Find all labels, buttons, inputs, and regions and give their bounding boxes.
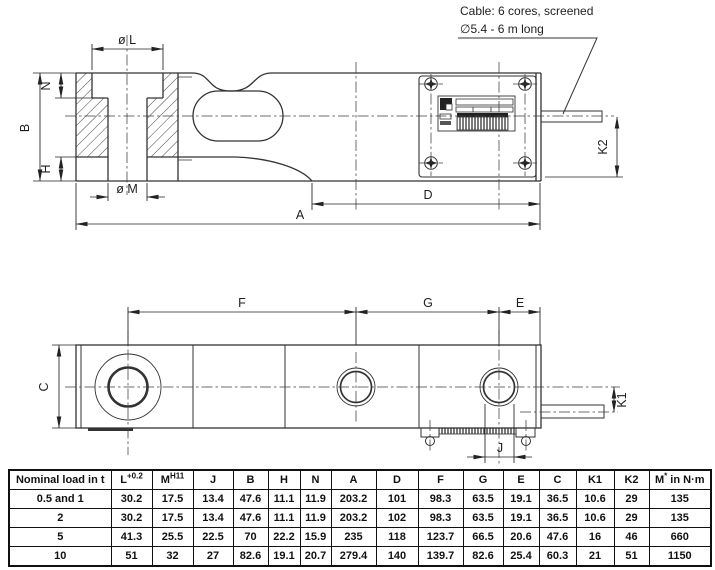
dim-label-N: N [39, 81, 53, 90]
load-cell-drawing-page: Cable: 6 cores, screened ∅5.4 - 6 m long… [0, 0, 715, 570]
load-cell: 2 [9, 509, 111, 528]
table-row: 2 30.2 17.5 13.4 47.6 11.1 11.9 203.2 10… [9, 509, 711, 528]
col-header-C: C [539, 470, 576, 490]
col-header-load: Nominal load in t [9, 470, 111, 490]
col-header-N: N [300, 470, 331, 490]
table-header-row: Nominal load in t L+0.2 MH11 J B H N A D… [9, 470, 711, 490]
dim-label-H: H [39, 164, 53, 173]
col-header-M: MH11 [152, 470, 193, 490]
col-header-K2: K2 [614, 470, 649, 490]
dim-label-J: J [497, 441, 503, 455]
side-view-dimensions [33, 44, 623, 230]
dim-label-B: B [18, 124, 32, 132]
dim-label-oM: ø M [116, 182, 138, 196]
col-header-K1: K1 [576, 470, 614, 490]
table-row: 0.5 and 1 30.2 17.5 13.4 47.6 11.1 11.9 … [9, 490, 711, 509]
col-header-H: H [268, 470, 300, 490]
left-foot-strip [88, 428, 133, 431]
dim-label-K1: K1 [615, 392, 629, 407]
col-header-D: D [376, 470, 418, 490]
col-header-torque: M* in N·m [649, 470, 711, 490]
load-cell: 5 [9, 528, 111, 547]
cable-stub-plan [541, 405, 604, 418]
dim-label-C: C [37, 382, 51, 391]
dim-label-K2: K2 [596, 139, 610, 154]
plan-view-centerlines [65, 330, 620, 465]
technical-drawing: Cable: 6 cores, screened ∅5.4 - 6 m long… [0, 0, 715, 465]
load-cell: 10 [9, 547, 111, 567]
table-row: 10 51 32 27 82.6 19.1 20.7 279.4 140 139… [9, 547, 711, 567]
dim-label-F: F [238, 296, 246, 310]
dim-label-D: D [423, 188, 432, 202]
table-row: 5 41.3 25.5 22.5 70 22.2 15.9 235 118 12… [9, 528, 711, 547]
rating-label [438, 96, 515, 131]
plan-view-dimensions [52, 307, 614, 463]
col-header-A: A [331, 470, 376, 490]
col-header-E: E [503, 470, 539, 490]
col-header-G: G [463, 470, 503, 490]
load-cell: 0.5 and 1 [9, 490, 111, 509]
side-view [76, 73, 602, 181]
dimension-table: Nominal load in t L+0.2 MH11 J B H N A D… [8, 469, 712, 567]
dim-label-oL: ø L [118, 33, 136, 47]
col-header-B: B [233, 470, 268, 490]
col-header-L: L+0.2 [111, 470, 152, 490]
barcode [457, 113, 508, 117]
col-header-F: F [418, 470, 463, 490]
dim-label-G: G [423, 296, 433, 310]
cable-note-line1: Cable: 6 cores, screened [460, 4, 593, 18]
plan-view [76, 345, 604, 446]
dim-label-A: A [296, 208, 305, 222]
col-header-J: J [193, 470, 233, 490]
dim-label-E: E [516, 296, 524, 310]
cable-stub-side [541, 111, 602, 122]
mounting-feet [421, 428, 535, 446]
cable-note-line2: ∅5.4 - 6 m long [460, 22, 544, 36]
